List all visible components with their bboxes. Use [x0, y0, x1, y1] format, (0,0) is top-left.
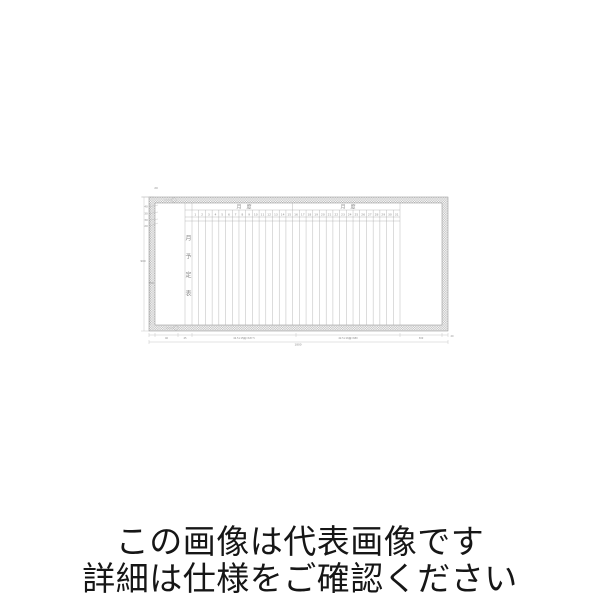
dim-row-3: 30: [144, 218, 148, 222]
day-number: 11: [261, 212, 265, 216]
day-number: 26: [361, 212, 365, 216]
dim-left-total: 900: [140, 259, 146, 263]
technical-drawing: 1234567891011121314151617181920212223242…: [138, 178, 478, 353]
day-number: 19: [314, 212, 318, 216]
day-number: 24: [348, 212, 352, 216]
day-number: 6: [228, 212, 230, 216]
dim-seg-4: 42.5×16隔=680: [338, 336, 358, 340]
day-number: 16: [294, 212, 298, 216]
day-number: 27: [368, 212, 372, 216]
day-number: 1: [194, 212, 196, 216]
caption: この画像は代表画像です 詳細は仕様をご確認ください: [0, 523, 600, 597]
dim-left-inner: 750: [148, 281, 154, 285]
day-number: 23: [341, 212, 345, 216]
day-number: 25: [354, 212, 358, 216]
day-number: 17: [301, 212, 305, 216]
dim-seg-6: 20: [450, 335, 454, 338]
day-number: 4: [215, 212, 217, 216]
day-number: 15: [287, 212, 291, 216]
product-image-page: 1234567891011121314151617181920212223242…: [0, 0, 600, 600]
dim-row-2: 30: [144, 212, 148, 216]
dim-bottom-total: 1800: [294, 343, 301, 347]
dim-top-corner: 20: [154, 186, 158, 190]
dim-seg-1: 40: [165, 337, 169, 340]
day-number: 21: [328, 212, 332, 216]
day-number: 22: [334, 212, 338, 216]
caption-line-1: この画像は代表画像です: [0, 523, 600, 560]
day-number: 2: [201, 212, 203, 216]
day-number: 13: [274, 212, 278, 216]
dim-row-1: 40: [144, 205, 148, 209]
day-number: 28: [375, 212, 379, 216]
day-number: 18: [308, 212, 312, 216]
day-number: 29: [381, 212, 385, 216]
month-header-right: 月 度: [340, 204, 355, 211]
day-number: 30: [388, 212, 392, 216]
caption-line-2: 詳細は仕様をご確認ください: [0, 560, 600, 597]
day-number: 7: [235, 212, 237, 216]
day-number: 31: [395, 212, 399, 216]
dim-seg-2: 45: [183, 337, 187, 340]
day-number: 3: [208, 212, 210, 216]
day-number: 12: [267, 212, 271, 216]
day-number: 14: [281, 212, 285, 216]
day-number: 9: [248, 212, 250, 216]
month-header-left: 月 度: [236, 204, 251, 211]
day-number: 5: [221, 212, 223, 216]
dim-seg-3: 42.5×15隔=637.5: [233, 336, 255, 340]
dim-seg-5: 300: [419, 337, 424, 340]
day-number: 20: [321, 212, 325, 216]
day-number: 10: [254, 212, 258, 216]
dim-row-4: 20: [144, 224, 148, 228]
day-number: 8: [241, 212, 243, 216]
whiteboard-drawing-svg: 1234567891011121314151617181920212223242…: [138, 178, 478, 353]
